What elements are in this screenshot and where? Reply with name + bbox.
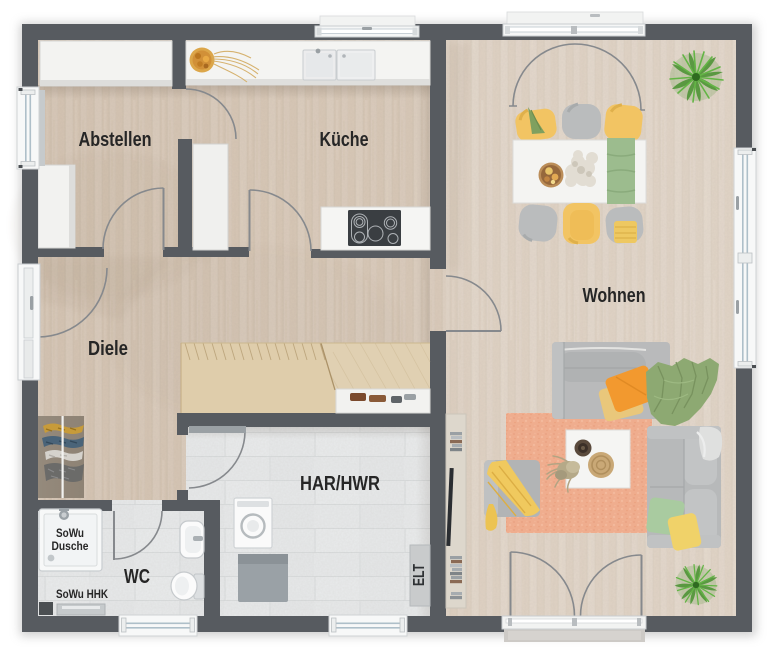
svg-text:HAR/HWR: HAR/HWR (300, 473, 380, 495)
svg-text:Wohnen: Wohnen (583, 285, 646, 307)
svg-text:ELT: ELT (411, 564, 428, 586)
svg-text:SoWu: SoWu (56, 528, 84, 540)
svg-text:SoWu HHK: SoWu HHK (56, 589, 109, 601)
svg-text:Abstellen: Abstellen (79, 129, 152, 151)
svg-text:WC: WC (124, 566, 150, 588)
svg-text:Dusche: Dusche (52, 541, 89, 553)
svg-text:Diele: Diele (88, 338, 128, 360)
svg-text:Küche: Küche (320, 129, 369, 151)
